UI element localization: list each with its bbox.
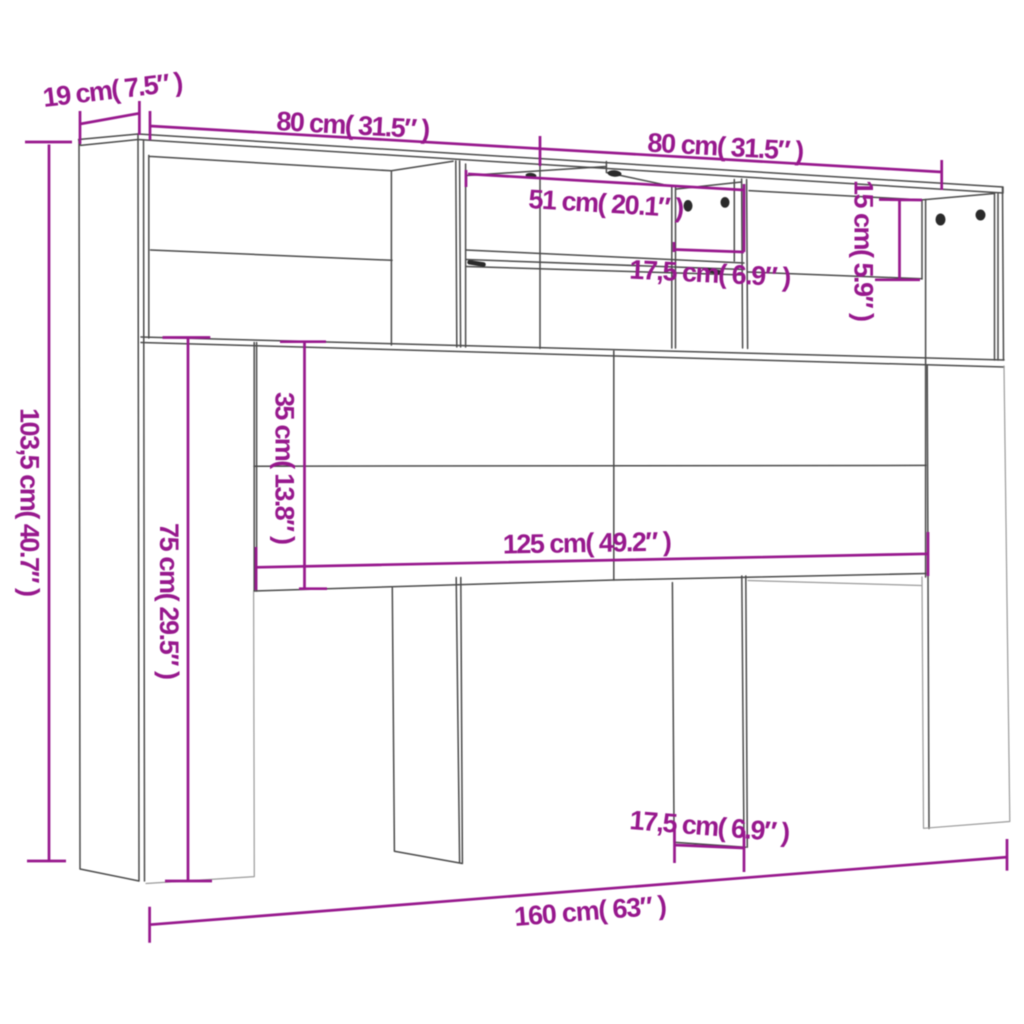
svg-text:75 cm( 29.5″ ): 75 cm( 29.5″ ) bbox=[154, 523, 184, 680]
svg-text:103,5 cm( 40.7″ ): 103,5 cm( 40.7″ ) bbox=[15, 408, 45, 597]
svg-text:125 cm( 49.2″ ): 125 cm( 49.2″ ) bbox=[503, 527, 672, 560]
svg-text:15 cm( 5.9″ ): 15 cm( 5.9″ ) bbox=[849, 180, 879, 322]
svg-text:35 cm( 13.8″ ): 35 cm( 13.8″ ) bbox=[270, 392, 300, 545]
